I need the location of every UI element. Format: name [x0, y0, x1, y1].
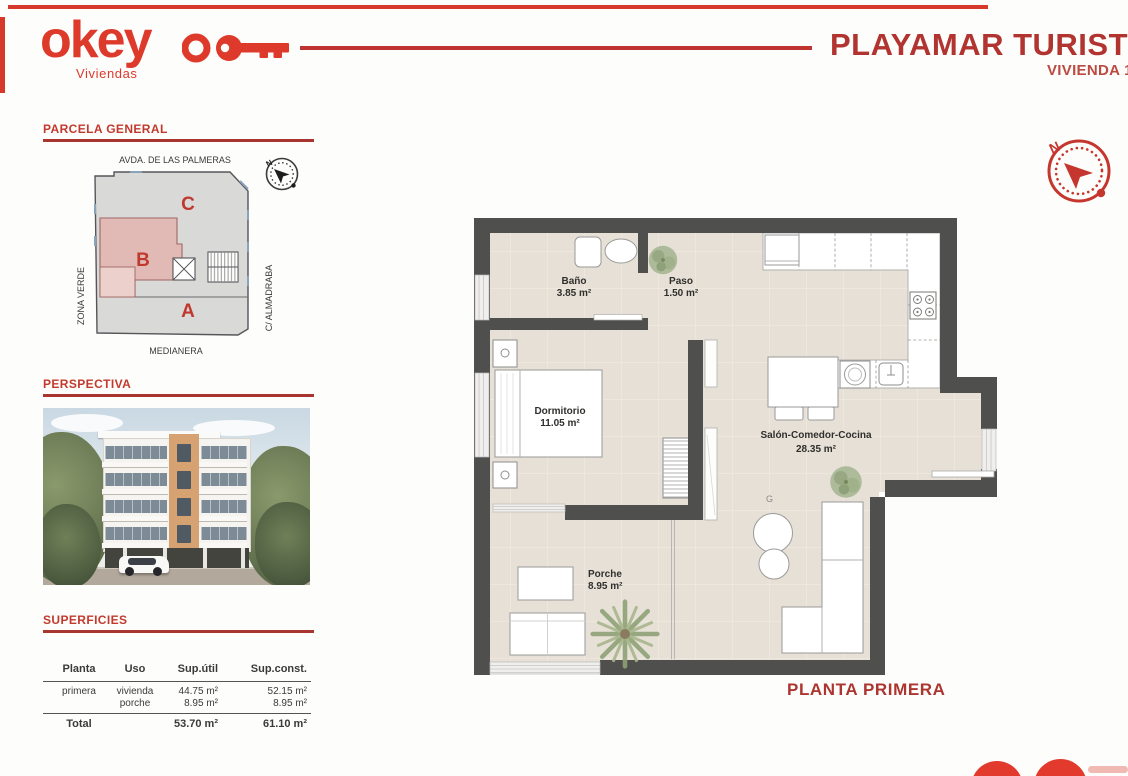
door-panel [705, 340, 717, 387]
col-sup-const: Sup.const. [237, 663, 307, 675]
tree [255, 502, 310, 585]
room-name-bano: Baño [562, 276, 587, 287]
perspective-render [43, 408, 310, 585]
superficies-table: Planta Uso Sup.útil Sup.const. primera v… [43, 663, 311, 743]
room-name-dormitorio: Dormitorio [534, 406, 585, 417]
site-plan: C B A AVDA. DE LAS PALMERAS MEDIANERA ZO… [70, 148, 315, 363]
plan-sheet: okey Viviendas PLAYAMAR TURISTIC VIVIEND… [0, 0, 1128, 776]
cell-total-label: Total [51, 718, 107, 730]
room-name-salon: Salón-Comedor-Cocina [760, 430, 872, 441]
header-dash-rule [300, 46, 812, 50]
street-top-label: AVDA. DE LAS PALMERAS [119, 155, 231, 165]
nightstand [493, 462, 517, 488]
car-wheel [125, 567, 134, 576]
kitchen-cabinet [765, 235, 799, 265]
street-bottom-label: MEDIANERA [149, 346, 203, 356]
plant [649, 246, 678, 275]
floorplan-compass-icon: N [1044, 136, 1114, 206]
cell-planta: primera [51, 686, 107, 697]
block-c-label: C [181, 194, 195, 215]
elevator-symbol [173, 258, 195, 280]
logo-key-shaft-fragment [1088, 766, 1128, 773]
perspectiva-rule [43, 394, 314, 397]
room-name-paso: Paso [669, 276, 693, 287]
cell-const-porche: 8.95 m² [237, 698, 307, 709]
room-area-bano: 3.85 m² [557, 288, 592, 299]
plant [830, 466, 862, 498]
toilet [575, 237, 601, 267]
sliding-door [493, 504, 565, 512]
cell-uso-porche: porche [107, 698, 163, 709]
block-a-label: A [181, 301, 195, 322]
page-title: PLAYAMAR TURISTIC [830, 27, 1128, 63]
perspectiva-heading: PERSPECTIVA [43, 377, 131, 391]
page-subtitle: VIVIENDA 1ºB [1047, 62, 1128, 79]
room-area-salon: 28.35 m² [796, 444, 837, 455]
block-b-label: B [136, 250, 150, 271]
logo-circle-fragment [1034, 759, 1087, 776]
cell-util-vivienda: 44.75 m² [158, 686, 218, 697]
side-left-label: ZONA VERDE [76, 267, 86, 325]
left-red-bar [0, 17, 5, 93]
bathroom-door [594, 315, 642, 321]
site-compass-icon: N [265, 158, 298, 190]
logo-circle-fragment [971, 761, 1023, 776]
car-wheel [153, 567, 162, 576]
building-render [103, 430, 251, 568]
top-red-rule [8, 5, 988, 9]
room-name-porche: Porche [588, 569, 622, 580]
palm-tree [593, 602, 658, 667]
plan-caption: PLANTA PRIMERA [787, 680, 946, 700]
superficies-heading: SUPERFICIES [43, 613, 127, 627]
superficies-rule [43, 630, 314, 633]
logo-wordmark: okey [40, 10, 151, 70]
nightstand [493, 340, 517, 367]
dining-table [768, 357, 838, 407]
window-sill [932, 471, 994, 477]
col-sup-util: Sup.útil [158, 663, 218, 675]
table-rule [43, 713, 311, 714]
room-area-paso: 1.50 m² [664, 288, 699, 299]
facade-right-column [201, 440, 247, 550]
cell-uso-vivienda: vivienda [107, 686, 163, 697]
parcela-rule [43, 139, 314, 142]
cell-util-porche: 8.95 m² [158, 698, 218, 709]
car [119, 556, 169, 573]
svg-text:N: N [265, 158, 275, 169]
col-planta: Planta [51, 663, 107, 675]
round-table [754, 514, 793, 553]
block-b-annex [100, 267, 135, 297]
bathroom-sink [605, 239, 637, 263]
col-uso: Uso [107, 663, 163, 675]
key-icon [182, 26, 294, 70]
cell-const-vivienda: 52.15 m² [237, 686, 307, 697]
round-table [759, 549, 789, 579]
plan-mark-g: G [766, 494, 773, 504]
table-rule [43, 681, 311, 682]
side-right-label: C/ ALMADRABA [264, 265, 274, 332]
north-label: N [1047, 138, 1063, 157]
floor-plan: Baño 3.85 m² Paso 1.50 m² Dormitorio 11.… [474, 215, 997, 677]
room-area-porche: 8.95 m² [588, 581, 623, 592]
car-window [128, 558, 156, 565]
cell-total-const: 61.10 m² [237, 718, 307, 730]
facade-tan-band [169, 434, 199, 552]
logo-tagline: Viviendas [76, 66, 138, 81]
parcela-heading: PARCELA GENERAL [43, 122, 168, 136]
porch-table [518, 567, 573, 600]
room-area-dormitorio: 11.05 m² [540, 418, 580, 429]
chair [775, 407, 803, 420]
cell-total-util: 53.70 m² [158, 718, 218, 730]
chair [808, 407, 834, 420]
stairs-symbol [208, 252, 238, 282]
facade-left-column [105, 440, 167, 550]
building-roof [98, 431, 220, 438]
